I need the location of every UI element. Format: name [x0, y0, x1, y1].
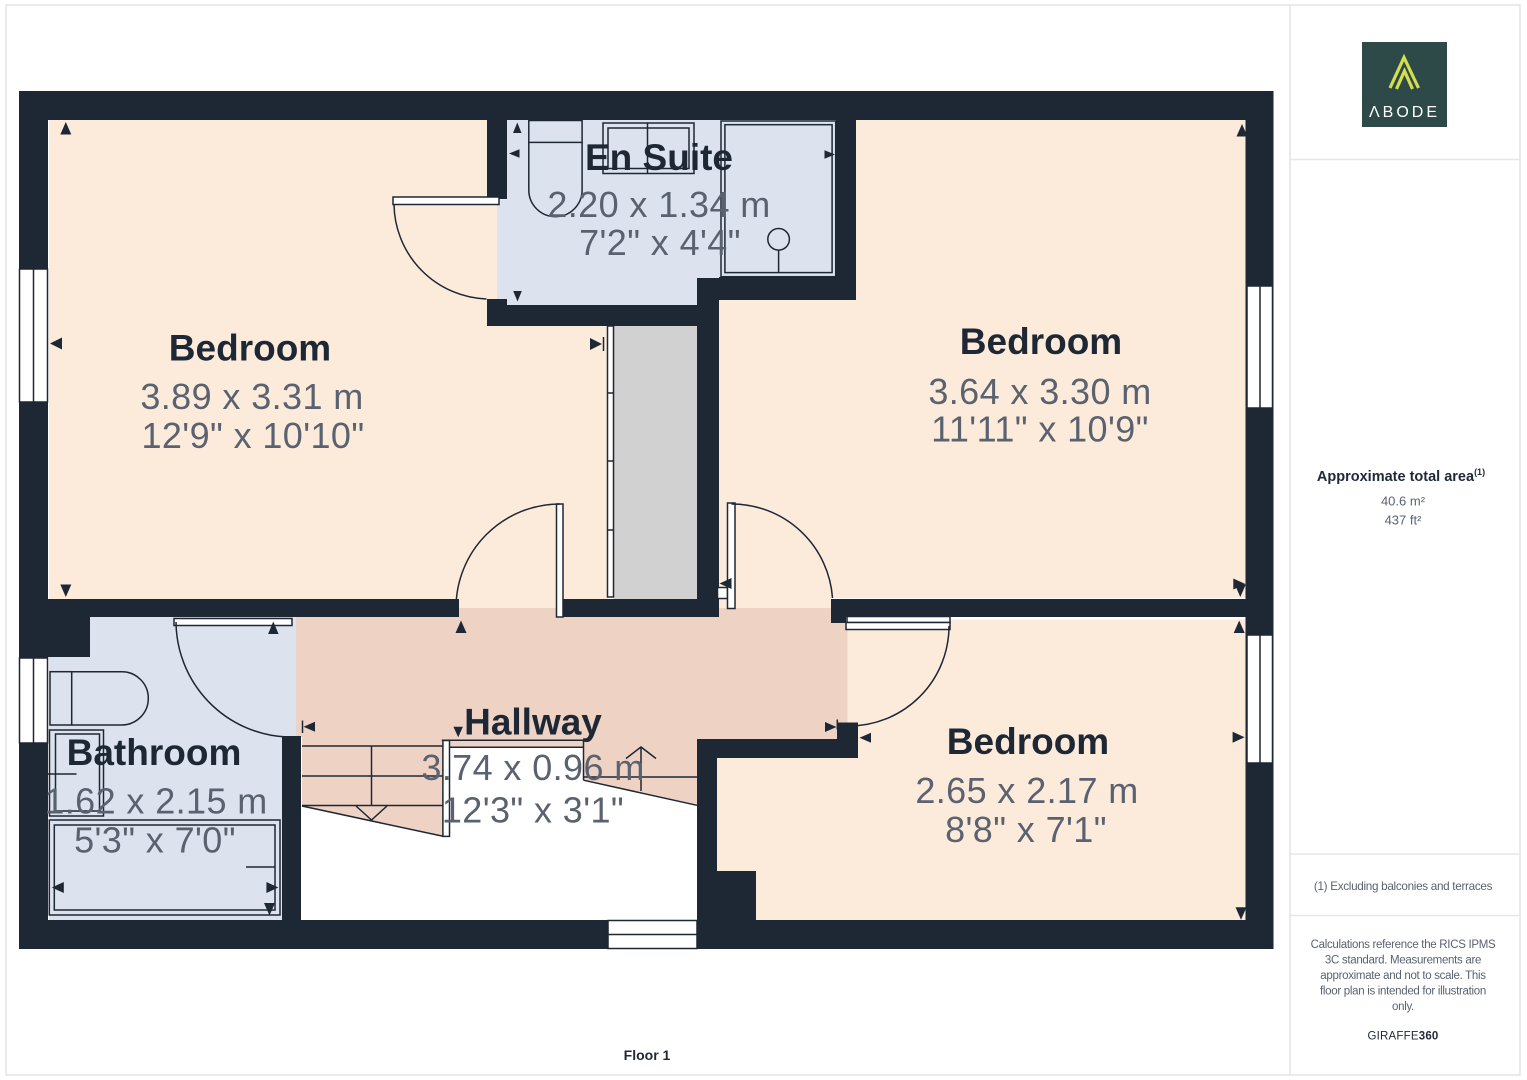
- svg-text:3.74 x 0.96 m: 3.74 x 0.96 m: [421, 747, 644, 788]
- svg-text:2.65 x 2.17 m: 2.65 x 2.17 m: [915, 770, 1138, 811]
- svg-text:only.: only.: [1392, 1001, 1414, 1013]
- svg-text:(1) Excluding balconies and te: (1) Excluding balconies and terraces: [1314, 880, 1493, 893]
- svg-text:En Suite: En Suite: [585, 137, 733, 178]
- svg-text:40.6 m²: 40.6 m²: [1381, 494, 1426, 509]
- svg-text:ΛBODE: ΛBODE: [1369, 104, 1440, 121]
- svg-text:12'3" x 3'1": 12'3" x 3'1": [442, 790, 624, 831]
- svg-text:5'3" x 7'0": 5'3" x 7'0": [74, 820, 236, 861]
- svg-text:3.89 x 3.31 m: 3.89 x 3.31 m: [140, 376, 363, 417]
- svg-text:Bedroom: Bedroom: [947, 721, 1109, 762]
- svg-text:12'9" x 10'10": 12'9" x 10'10": [141, 415, 364, 456]
- svg-text:7'2" x 4'4": 7'2" x 4'4": [579, 222, 741, 263]
- svg-text:Floor 1: Floor 1: [624, 1047, 671, 1063]
- svg-text:1.62 x 2.15 m: 1.62 x 2.15 m: [44, 781, 267, 822]
- svg-text:11'11" x 10'9": 11'11" x 10'9": [931, 409, 1149, 450]
- svg-text:GIRAFFE360: GIRAFFE360: [1367, 1031, 1438, 1043]
- svg-text:3.64 x 3.30 m: 3.64 x 3.30 m: [928, 371, 1151, 412]
- svg-text:3C standard. Measurements are: 3C standard. Measurements are: [1325, 955, 1481, 967]
- svg-text:floor plan is intended for ill: floor plan is intended for illustration: [1320, 986, 1486, 998]
- svg-text:8'8" x 7'1": 8'8" x 7'1": [945, 809, 1107, 850]
- svg-text:Bathroom: Bathroom: [67, 732, 242, 773]
- svg-text:Approximate total area(1): Approximate total area(1): [1317, 467, 1485, 485]
- svg-text:approximate and not to scale.: approximate and not to scale. This: [1320, 970, 1486, 982]
- svg-text:Bedroom: Bedroom: [960, 321, 1122, 362]
- svg-text:Calculations reference the RIC: Calculations reference the RICS IPMS: [1311, 939, 1496, 951]
- svg-text:Bedroom: Bedroom: [169, 328, 331, 369]
- svg-text:Hallway: Hallway: [464, 702, 602, 743]
- svg-text:2.20 x 1.34 m: 2.20 x 1.34 m: [547, 184, 770, 225]
- svg-text:437 ft²: 437 ft²: [1385, 513, 1423, 528]
